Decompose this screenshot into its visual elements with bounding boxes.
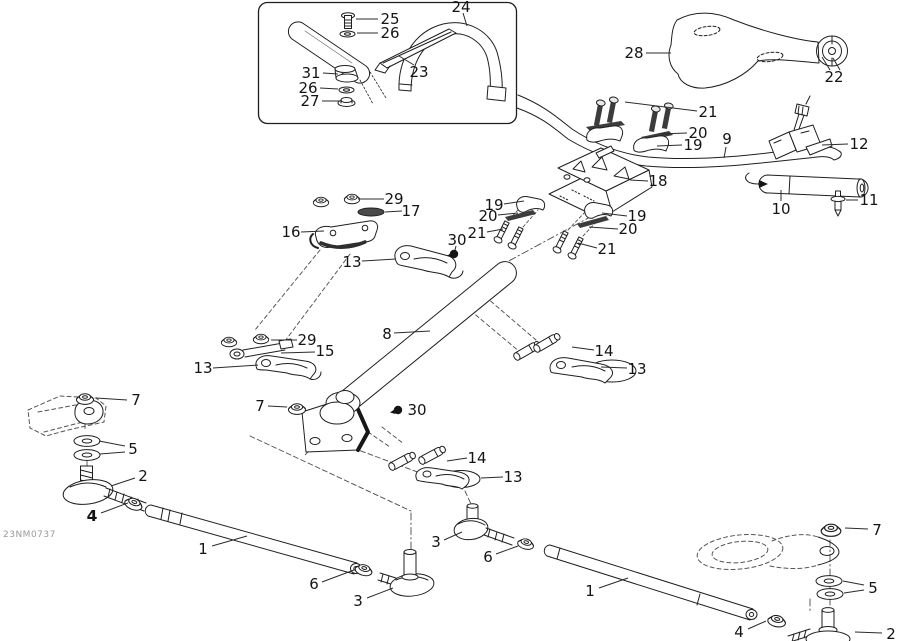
riser-18 — [446, 146, 652, 260]
spacer-17-art — [358, 208, 384, 216]
diagram-canvas: 2526312627232428222120199121011181920213… — [0, 0, 900, 641]
leader-line-5 — [843, 581, 864, 585]
tie-rod-end-2 — [788, 608, 850, 641]
left-tie-rod-assembly — [28, 394, 435, 598]
nut-7-art — [821, 524, 841, 536]
part-label-2: 2 — [886, 625, 896, 641]
part-label-13: 13 — [342, 253, 361, 271]
leader-line-13 — [213, 365, 258, 368]
washer-5-art — [74, 436, 100, 447]
bracket-16 — [310, 194, 384, 248]
part-label-14: 14 — [467, 449, 486, 467]
leader-line-2 — [111, 478, 135, 486]
ball-30-art — [390, 406, 402, 414]
leader-line-7 — [845, 528, 868, 529]
leader-line-21 — [578, 243, 597, 248]
leader-line-13 — [481, 477, 503, 478]
part-label-13: 13 — [627, 360, 646, 378]
part-label-7: 7 — [872, 521, 882, 539]
part-label-15: 15 — [315, 342, 334, 360]
rotation-arrow — [746, 173, 758, 184]
jam-nut-4-art — [767, 614, 787, 629]
console-28 — [669, 13, 847, 88]
part-label-27: 27 — [300, 92, 319, 110]
nut-7-art — [77, 394, 94, 405]
part-label-19: 19 — [683, 136, 702, 154]
tie-rod-1 — [145, 505, 361, 574]
nut-7-art — [289, 404, 306, 415]
leader-line-6 — [322, 570, 354, 582]
lever-clamp-12 — [769, 96, 832, 159]
washer-5-art — [74, 450, 100, 461]
leader-line-4 — [101, 503, 128, 513]
part-label-5: 5 — [868, 579, 878, 597]
cap-19-art — [585, 203, 613, 219]
part-label-2: 2 — [138, 467, 148, 485]
part-label-17: 17 — [401, 202, 420, 220]
part-label-22: 22 — [824, 68, 843, 86]
cap-19-art — [634, 136, 669, 152]
leader-line-21 — [625, 102, 697, 111]
phantom-spindle — [695, 531, 839, 574]
part-label-5: 5 — [128, 440, 138, 458]
leader-line-13 — [362, 259, 396, 261]
figure-code: 23NM0737 — [3, 530, 56, 540]
mid-rod-end-3 — [453, 504, 535, 551]
part-label-3: 3 — [353, 592, 363, 610]
part-label-13: 13 — [193, 359, 212, 377]
leader-line-7 — [96, 398, 127, 400]
washer-26b-art — [339, 87, 354, 93]
part-label-30: 30 — [407, 401, 426, 419]
leader-line-20 — [589, 227, 618, 229]
part-label-14: 14 — [594, 342, 613, 360]
jam-nut-6-art — [517, 537, 535, 551]
part-label-11: 11 — [859, 191, 878, 209]
leader-line-15 — [281, 352, 315, 353]
part-label-6: 6 — [483, 548, 493, 566]
leader-line-14 — [447, 458, 467, 461]
leader-line-9 — [724, 147, 726, 158]
leader-line-1 — [599, 578, 628, 588]
steering-column-8 — [320, 262, 516, 424]
washer-26-art — [340, 31, 355, 37]
part-label-30: 30 — [447, 231, 466, 249]
leader-line-2 — [855, 632, 882, 633]
part-label-8: 8 — [382, 325, 392, 343]
leader-line-4 — [748, 621, 766, 629]
cap-19-art — [517, 197, 545, 213]
leader-line-5 — [844, 590, 864, 593]
part-label-21: 21 — [698, 103, 717, 121]
leader-line-14 — [572, 347, 594, 350]
right-14-13 — [512, 332, 636, 383]
part-label-26: 26 — [380, 24, 399, 42]
part-label-28: 28 — [624, 44, 643, 62]
part-label-20: 20 — [478, 207, 497, 225]
grip-10 — [746, 173, 868, 197]
part-label-24: 24 — [451, 0, 470, 16]
leader-line-17 — [385, 211, 402, 212]
leader-line-7 — [268, 406, 287, 407]
part-label-29: 29 — [297, 331, 316, 349]
parts-diagram: 2526312627232428222120199121011181920213… — [0, 0, 900, 641]
part-label-10: 10 — [771, 200, 790, 218]
lower-14-13 — [388, 445, 480, 489]
washer-5-art — [816, 576, 842, 587]
part-label-4: 4 — [87, 507, 98, 525]
part-label-21: 21 — [467, 224, 486, 242]
part-label-18: 18 — [648, 172, 667, 190]
part-label-7: 7 — [131, 391, 141, 409]
part-label-1: 1 — [585, 582, 595, 600]
part-label-3: 3 — [431, 533, 441, 551]
part-label-13: 13 — [503, 468, 522, 486]
part-label-16: 16 — [281, 223, 300, 241]
part-label-9: 9 — [722, 130, 732, 148]
leader-line-3 — [367, 588, 393, 598]
leader-line-1 — [212, 536, 247, 546]
tie-rod-1 — [544, 545, 757, 620]
leader-line-5 — [99, 441, 125, 446]
part-label-1: 1 — [198, 540, 208, 558]
part-label-12: 12 — [849, 135, 868, 153]
part-label-23: 23 — [409, 63, 428, 81]
leader-line-5 — [100, 452, 125, 454]
washer-5-art — [817, 589, 843, 600]
part-label-7: 7 — [255, 397, 265, 415]
part-label-21: 21 — [597, 240, 616, 258]
leader-line-6 — [496, 546, 518, 554]
part-label-4: 4 — [734, 623, 744, 641]
part-label-6: 6 — [309, 575, 319, 593]
part-label-20: 20 — [618, 220, 637, 238]
